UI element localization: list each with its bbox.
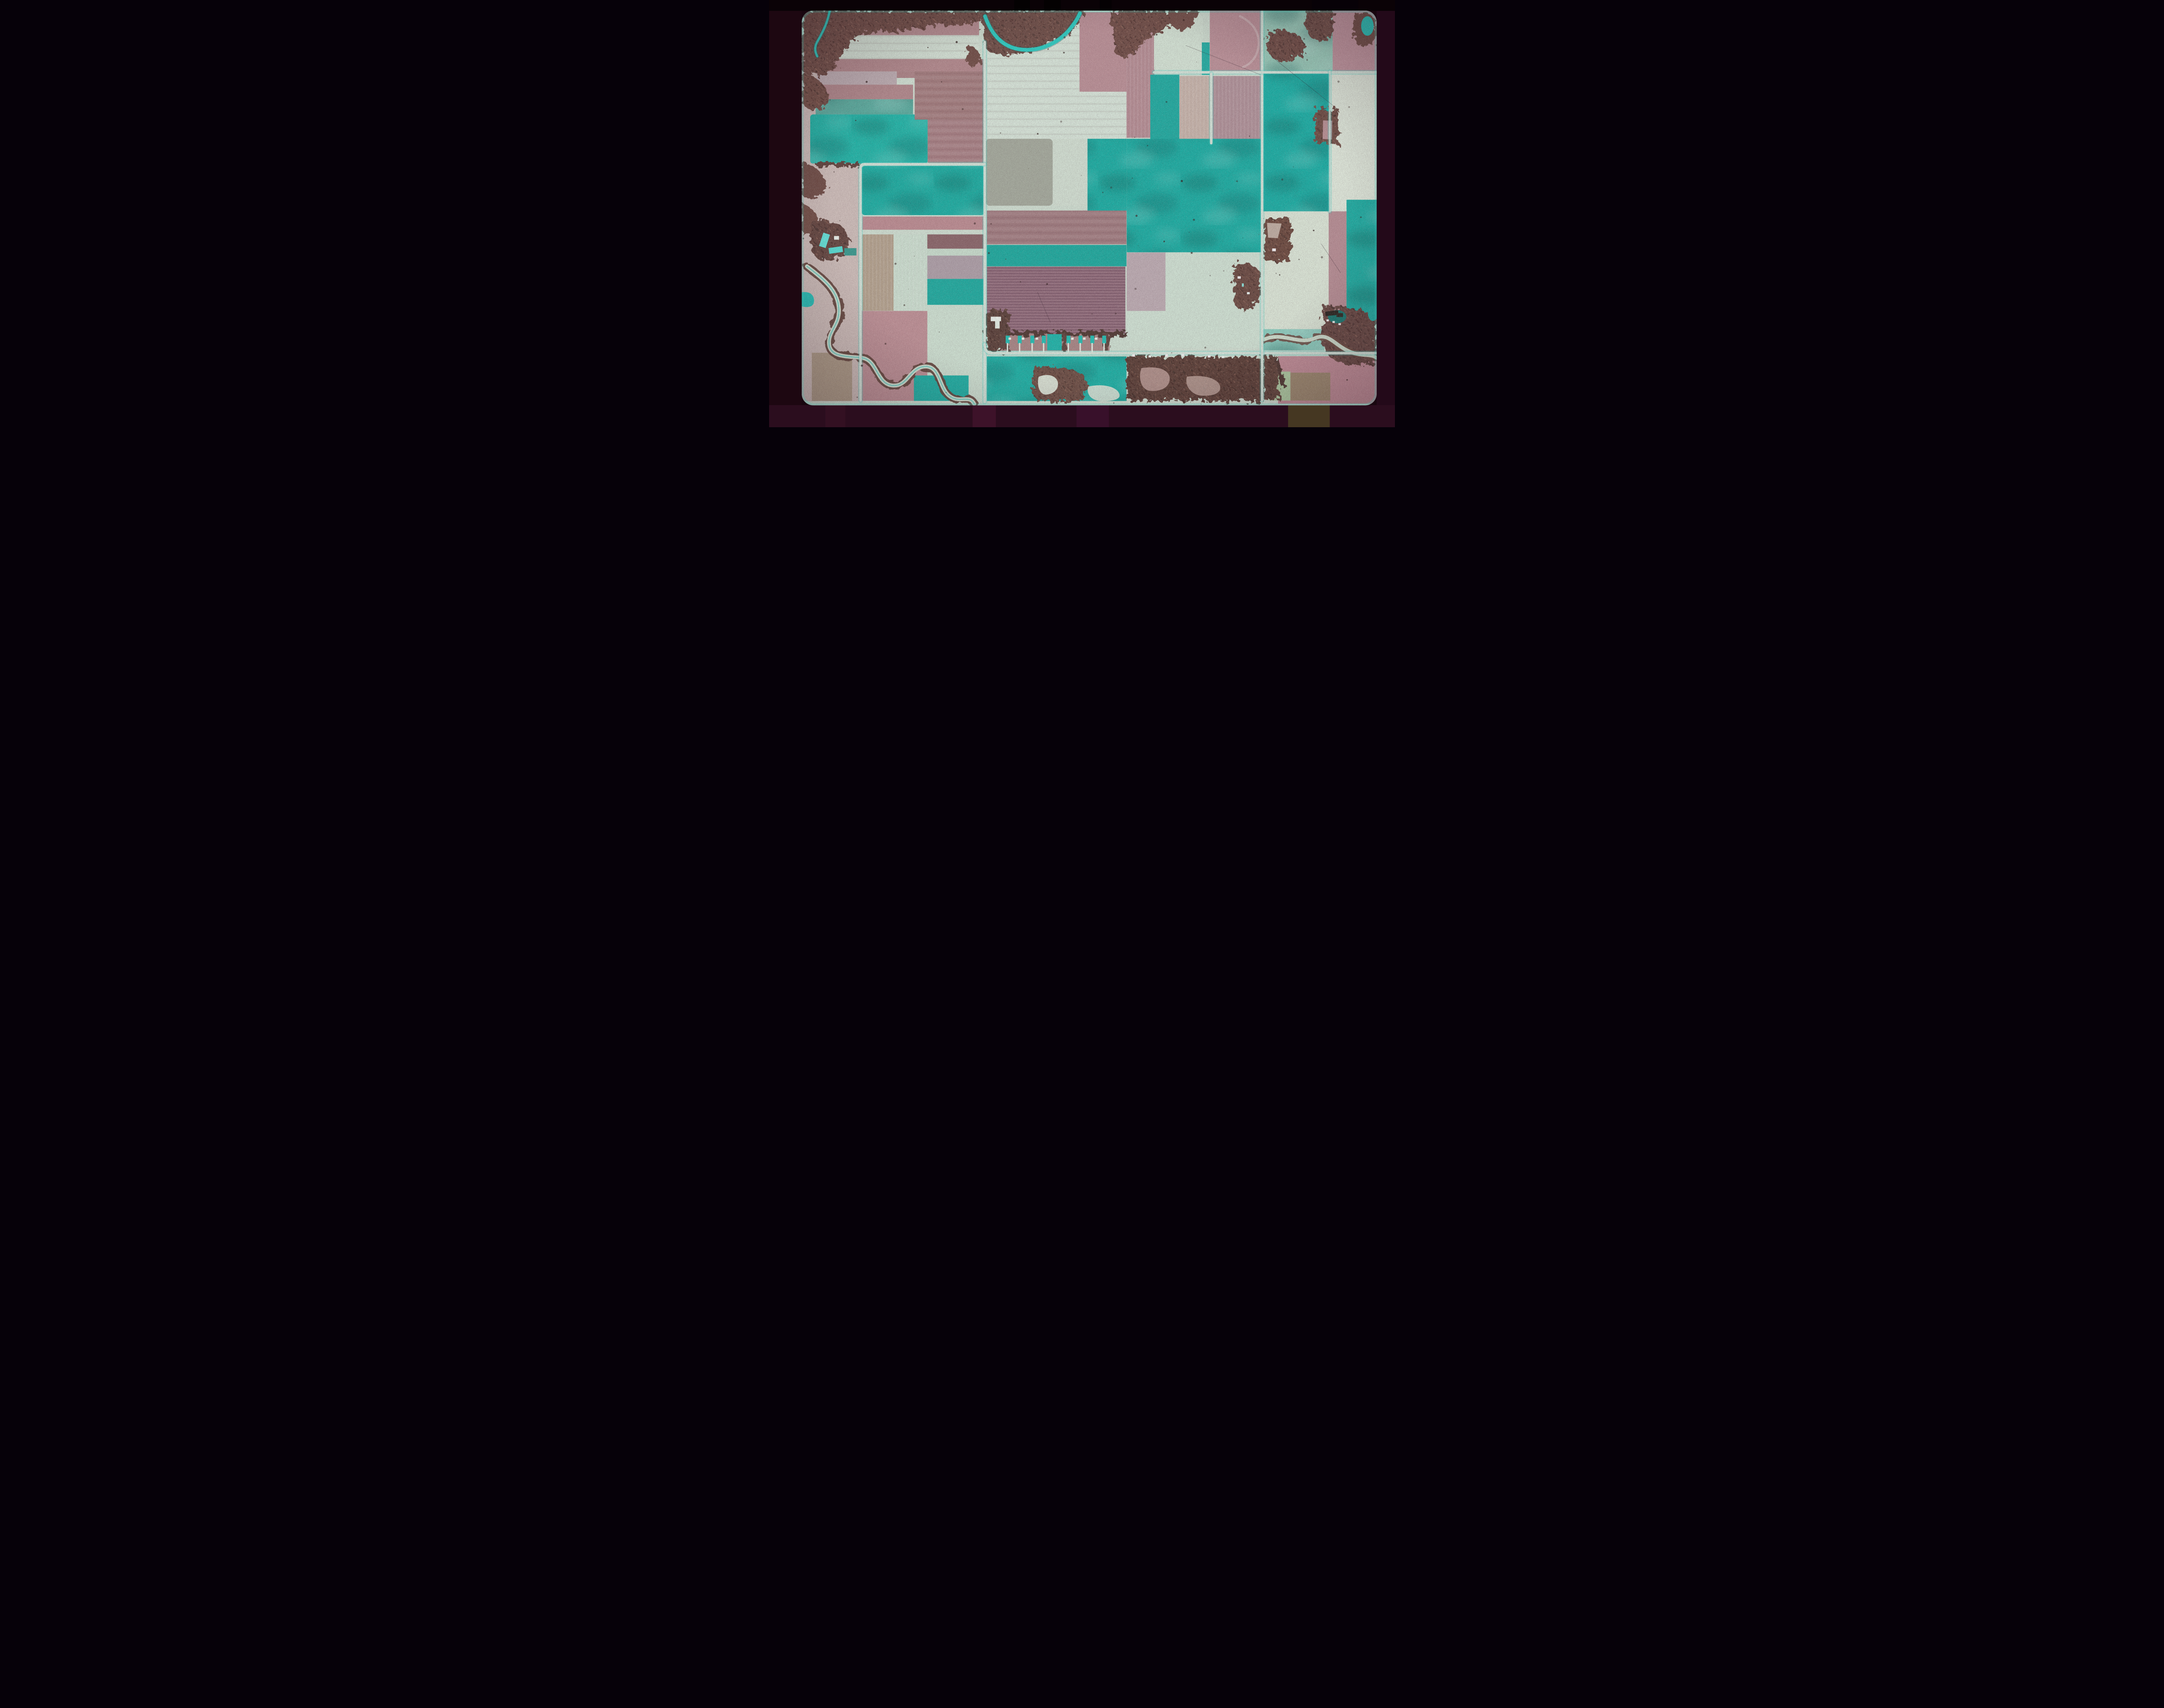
mount-bottom-streak [825,405,845,427]
mount-bottom-streak [973,405,996,427]
mount-right-band [1377,11,1395,407]
mount-top-streak [1014,0,1030,11]
mount-top-streak [1312,0,1359,11]
mount-top-band [769,0,1395,11]
aerial-photo-scene [769,0,1395,427]
mount-bottom-streak [1076,405,1109,427]
mount-top-streak [1100,0,1112,11]
mount-left-band [769,11,802,407]
mount-bottom-streak [1288,405,1330,427]
mount-top-streak [1044,0,1061,11]
slide-scan [769,0,1395,427]
